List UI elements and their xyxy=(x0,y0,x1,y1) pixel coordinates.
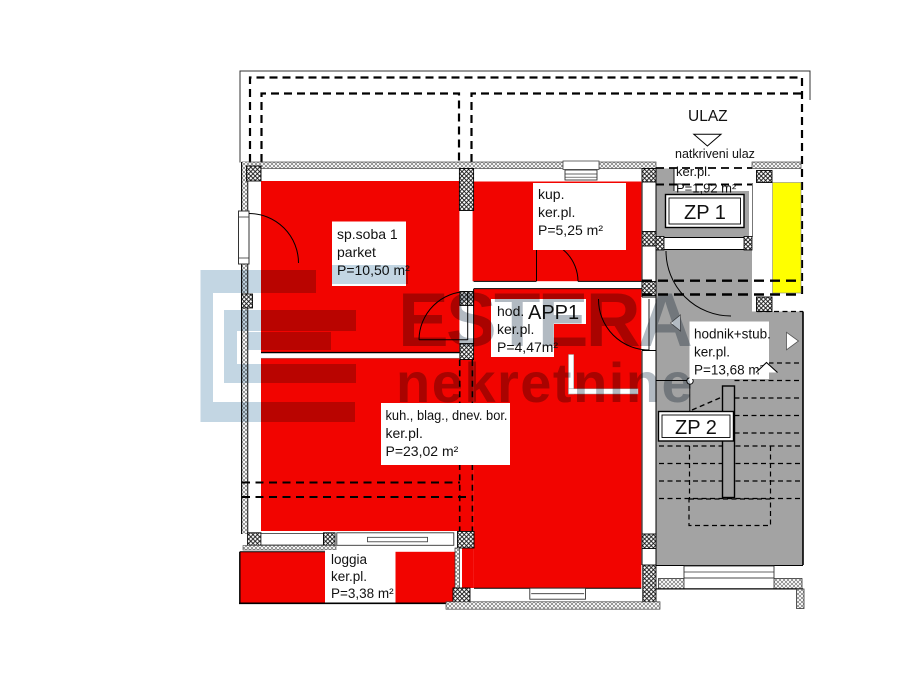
svg-text:nekretnine: nekretnine xyxy=(396,351,694,414)
